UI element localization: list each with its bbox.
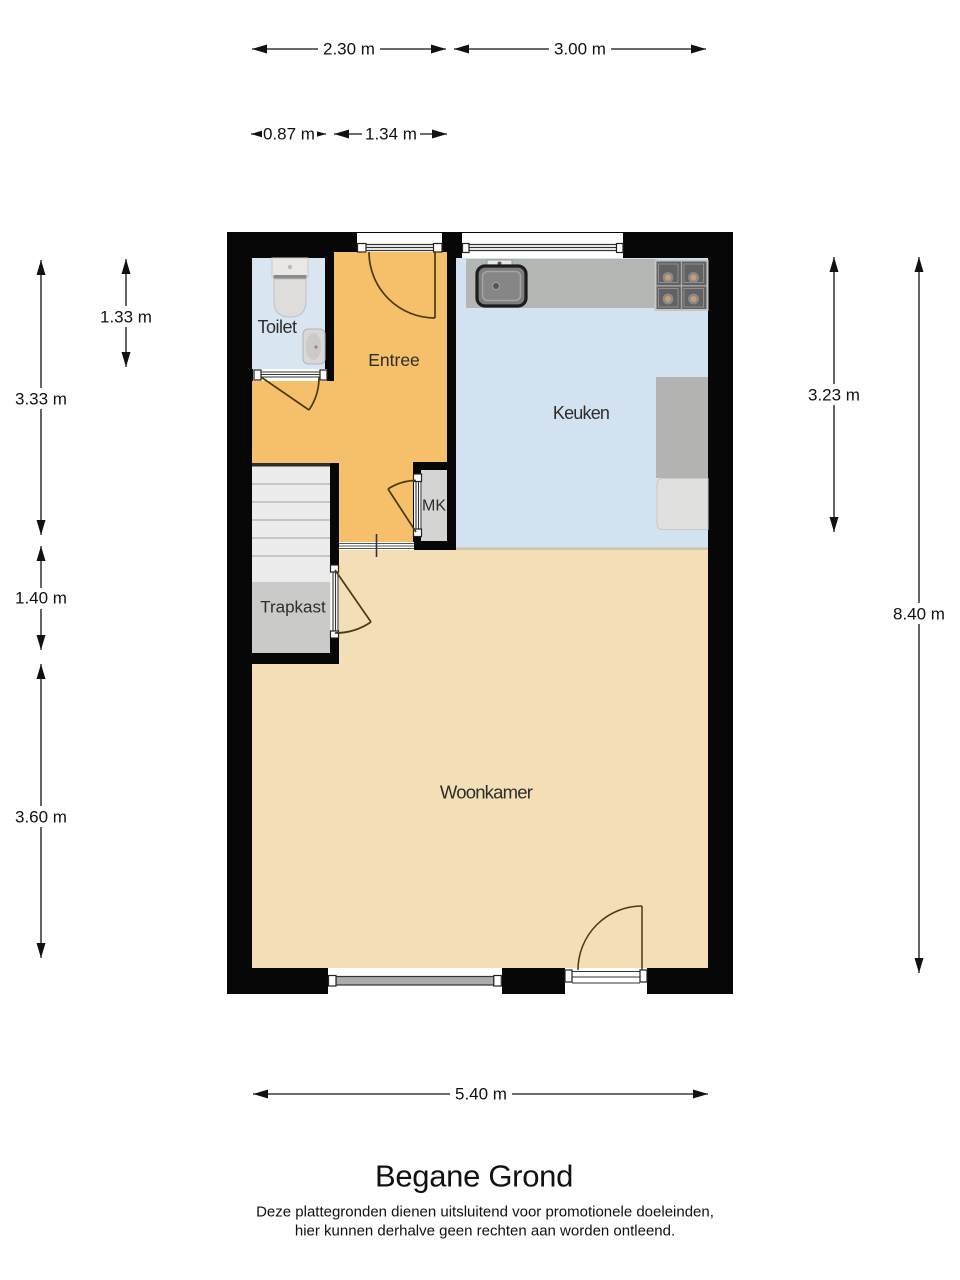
svg-text:0.87 m: 0.87 m [263,125,315,144]
svg-text:Entree: Entree [368,350,420,370]
svg-text:Trapkast: Trapkast [260,598,326,617]
svg-text:1.34 m: 1.34 m [365,125,417,144]
svg-text:8.40 m: 8.40 m [893,605,945,624]
svg-text:Toilet: Toilet [257,317,297,337]
svg-text:Begane Grond: Begane Grond [375,1159,573,1194]
svg-text:Woonkamer: Woonkamer [440,782,533,803]
svg-text:5.40 m: 5.40 m [455,1085,507,1104]
svg-text:hier kunnen derhalve geen rech: hier kunnen derhalve geen rechten aan wo… [295,1223,675,1240]
svg-text:3.23 m: 3.23 m [808,386,860,405]
svg-text:Keuken: Keuken [553,403,609,423]
svg-text:3.33 m: 3.33 m [15,390,67,409]
svg-text:1.33 m: 1.33 m [100,308,152,327]
svg-text:2.30 m: 2.30 m [323,40,375,59]
svg-text:1.40 m: 1.40 m [15,589,67,608]
svg-text:3.00 m: 3.00 m [554,40,606,59]
svg-text:3.60 m: 3.60 m [15,808,67,827]
svg-text:MK: MK [422,498,446,515]
svg-text:Deze plattegronden dienen uits: Deze plattegronden dienen uitsluitend vo… [256,1204,714,1221]
